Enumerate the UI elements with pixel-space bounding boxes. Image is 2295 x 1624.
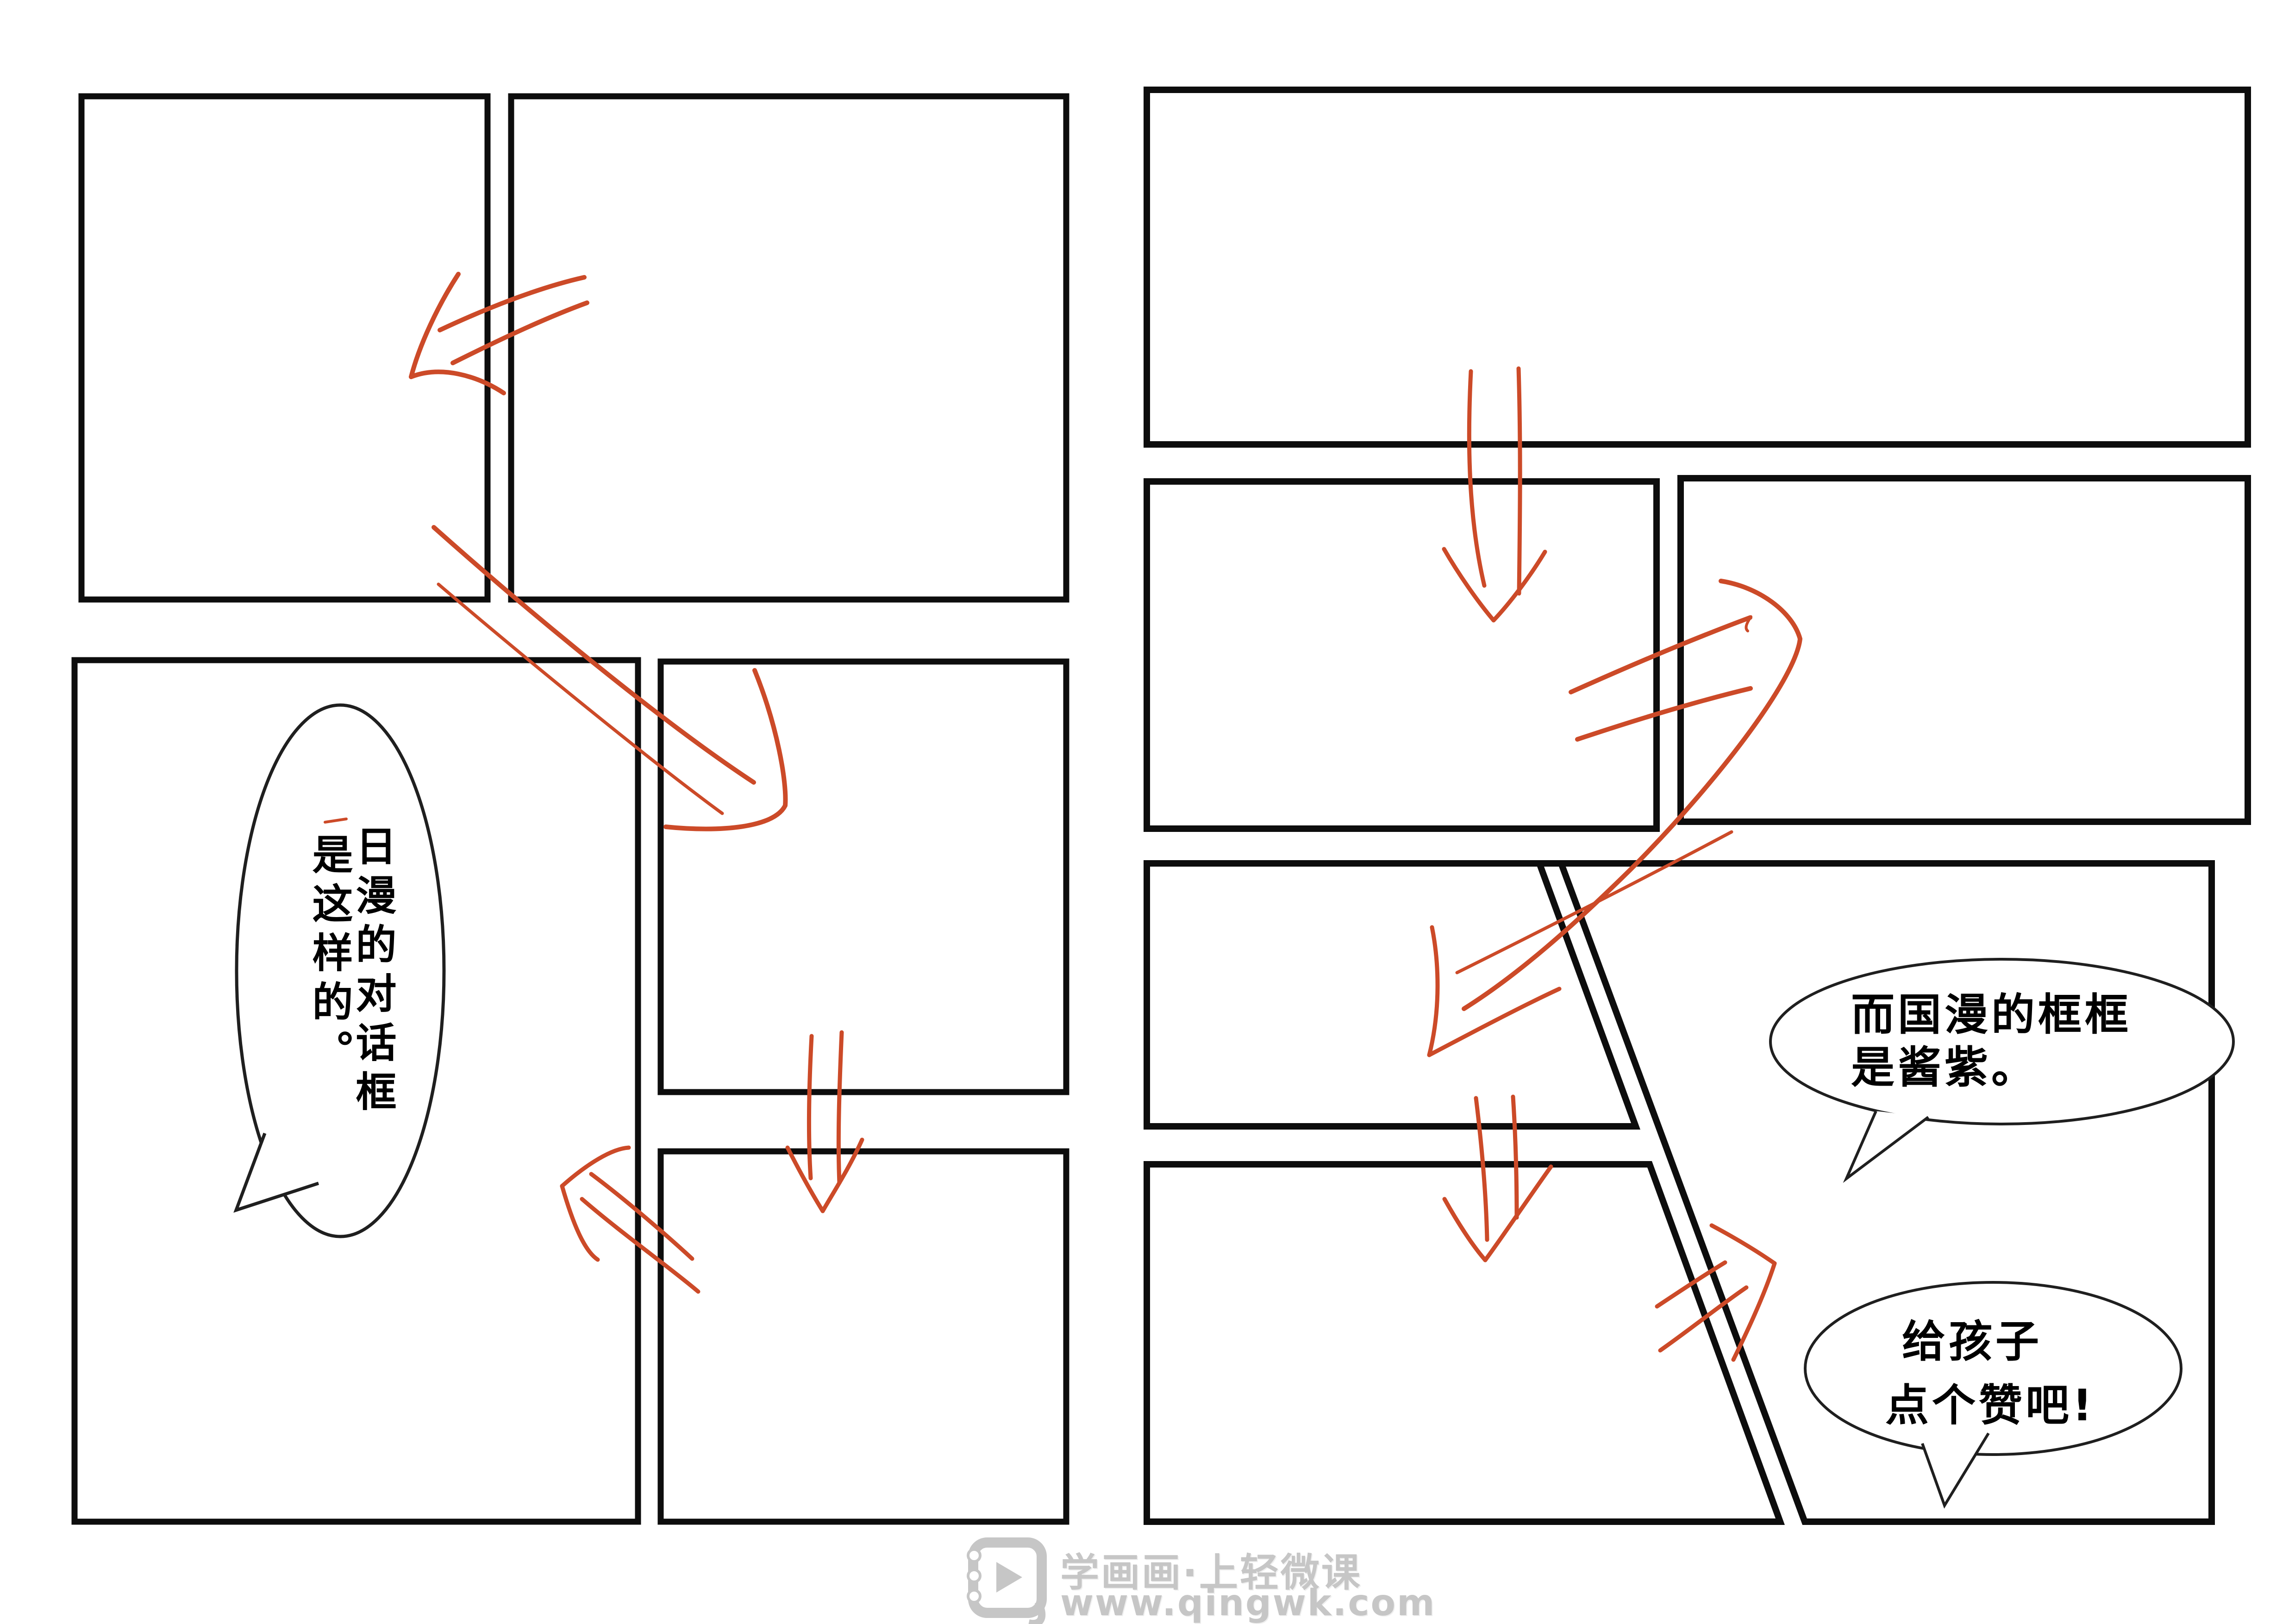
arrow-down-right-page-2 — [1445, 1097, 1551, 1260]
panel-slant-lower — [1147, 1164, 1780, 1522]
panel-wide-top — [1147, 90, 2248, 444]
qingwk-play-logo-icon — [968, 1543, 1042, 1624]
bubble-like-line1: 给孩子 — [1902, 1320, 2042, 1364]
bubble-frames-tail — [1846, 1111, 1928, 1179]
bubble-left-text-col2: 是这样的。 — [300, 833, 359, 1079]
bubble-like-tail — [1922, 1433, 1989, 1505]
bubble-frames-line2: 是酱紫。 — [1851, 1046, 2038, 1090]
arrow-left-top — [411, 274, 587, 393]
bubble-frames-ellipse — [1770, 959, 2233, 1124]
bubble-like-line2: 点个赞吧! — [1885, 1384, 2095, 1428]
arrow-down-right-page-1 — [1444, 369, 1545, 620]
watermark-url-text: www.qingwk.com — [1060, 1582, 1436, 1624]
panel-mid-right — [661, 662, 1066, 1092]
arrow-left-bottom — [562, 1148, 698, 1292]
panel-bottom-right — [661, 1151, 1066, 1522]
comic-tutorial-page: 日漫的对话框 是这样的。 而国漫的框框 是酱紫。 给孩子 点个赞吧! 学画画·上… — [0, 0, 2295, 1624]
arrow-diagonal-left-page — [434, 527, 785, 829]
panel-slant-upper — [1147, 863, 1636, 1126]
panel-row2-right — [1681, 478, 2248, 822]
panel-top-right — [511, 96, 1066, 600]
panel-row2-left — [1147, 481, 1657, 829]
panel-top-left — [81, 96, 488, 600]
bubble-frames-line1: 而国漫的框框 — [1851, 993, 2132, 1037]
reading-order-arrows — [411, 274, 1800, 1360]
arrow-down-left-page — [788, 1032, 862, 1211]
